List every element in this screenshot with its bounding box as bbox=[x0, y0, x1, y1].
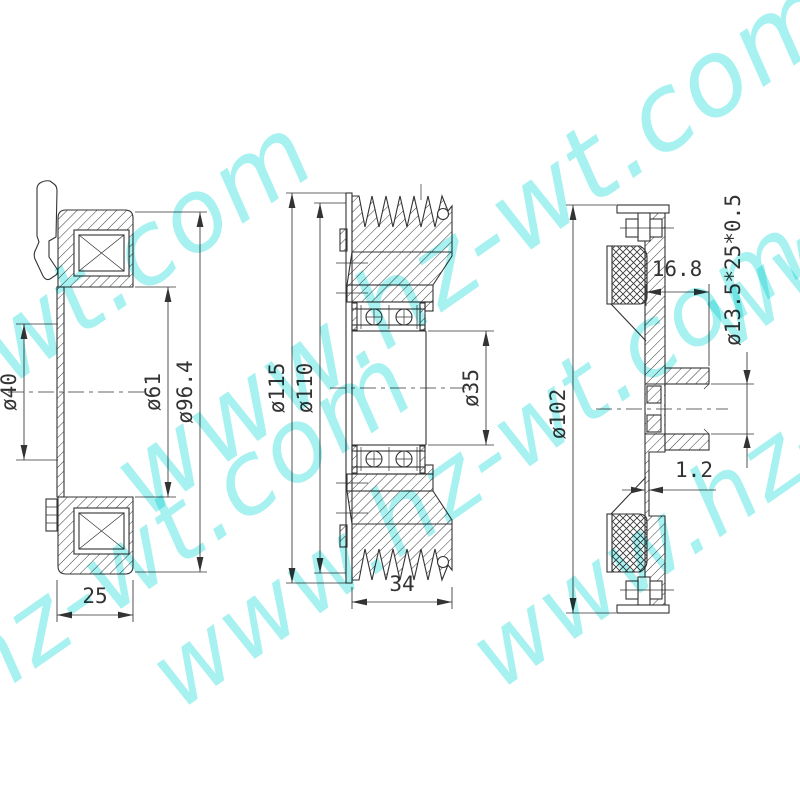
housing-lip-top bbox=[425, 302, 433, 311]
hub-rim-top bbox=[617, 205, 669, 213]
pulley-web-top bbox=[347, 252, 452, 285]
field-coil-view: ø40 ø61 ø96.4 25 bbox=[0, 181, 207, 622]
hub-view: ø102 16.8 ø13.5*25*0.5 1.2 bbox=[546, 194, 754, 613]
dim-coil-inner: ø61 bbox=[135, 287, 176, 497]
friction-ring-top bbox=[607, 246, 612, 304]
dim-label: ø115 bbox=[265, 363, 289, 414]
dim-label: 25 bbox=[82, 584, 107, 608]
dim-label: ø40 bbox=[0, 373, 21, 411]
pulley-web-bottom bbox=[347, 491, 452, 524]
rivet-bottom bbox=[620, 577, 674, 605]
damper-rubber-bottom bbox=[612, 514, 647, 572]
coil-connector-lead bbox=[34, 181, 58, 280]
thread-section-bottom bbox=[647, 415, 661, 432]
hub-cone-bottom bbox=[611, 477, 646, 514]
coil-mount-lug bbox=[46, 499, 57, 531]
dim-label: 34 bbox=[389, 572, 414, 596]
rim-lip-detail-top bbox=[438, 209, 449, 220]
drawing-canvas: ø40 ø61 ø96.4 25 bbox=[0, 0, 800, 800]
housing-lip-bottom bbox=[425, 465, 433, 474]
damper-rubber-top bbox=[612, 246, 647, 304]
rivet-top bbox=[620, 213, 674, 241]
hub-cone-top bbox=[611, 304, 646, 341]
coil-winding-top bbox=[74, 230, 129, 276]
technical-drawing-page: ø40 ø61 ø96.4 25 bbox=[0, 0, 800, 800]
thread-section-top bbox=[647, 386, 661, 403]
friction-ring-bottom bbox=[607, 514, 612, 572]
dim-label: 16.8 bbox=[652, 257, 703, 281]
dim-coil-width: 25 bbox=[57, 580, 133, 622]
bearing-housing-top bbox=[347, 285, 433, 302]
dim-label: ø61 bbox=[141, 373, 165, 411]
bearing-top bbox=[352, 302, 425, 331]
pulley-view: ø115 ø110 ø35 34 bbox=[265, 184, 494, 609]
snap-ring-top bbox=[340, 229, 347, 251]
hub-rim-bottom bbox=[617, 605, 669, 613]
dim-label: ø13.5*25*0.5 bbox=[721, 194, 745, 346]
bearing-bottom bbox=[352, 445, 425, 474]
bearing-housing-bottom bbox=[347, 474, 433, 491]
dim-label: ø35 bbox=[459, 369, 483, 407]
dim-label: ø110 bbox=[293, 363, 317, 414]
dim-label: 1.2 bbox=[675, 458, 713, 482]
coil-winding-bottom bbox=[74, 508, 129, 554]
dim-pulley-bore: ø35 bbox=[428, 331, 494, 445]
dim-label: ø102 bbox=[546, 389, 570, 440]
rim-lip-detail-bottom bbox=[438, 557, 449, 568]
snap-ring-bottom bbox=[340, 525, 347, 547]
dim-label: ø96.4 bbox=[173, 360, 197, 423]
dim-pulley-width: 34 bbox=[352, 572, 452, 609]
dim-hub-web: 1.2 bbox=[622, 458, 716, 493]
pulley-groove-band-top bbox=[352, 196, 452, 252]
dim-hub-thread: ø13.5*25*0.5 bbox=[711, 194, 754, 468]
